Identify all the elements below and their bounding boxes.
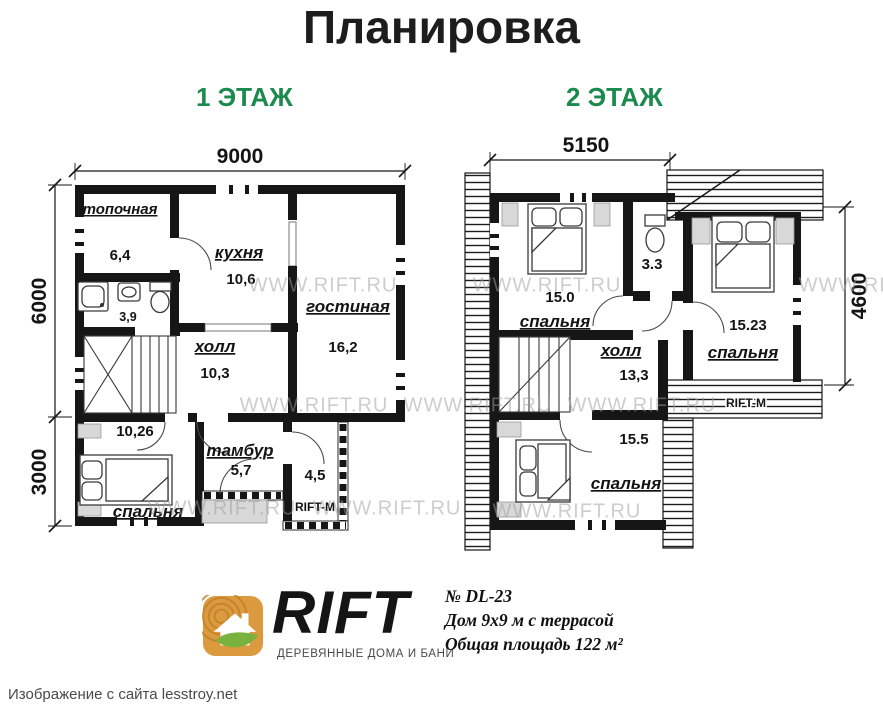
toilet [645,215,665,226]
balcony-riftm-label: RIFT-M [726,396,766,410]
project-description: Дом 9х9 м с террасой [445,608,623,632]
floor2-wc-fixtures [645,215,665,252]
svg-text:15.0: 15.0 [545,289,574,306]
roof-strip-bottom-right [663,418,693,548]
room-hall: холл [194,337,236,356]
rift-logo-icon [202,595,264,657]
dim-6000: 6000 [28,278,51,325]
nightstand [497,422,521,437]
nightstand [502,203,518,226]
nightstand [78,424,101,438]
room-porch-area: 4,5 [305,467,326,484]
floor2-bedroom1-furniture [502,203,610,274]
room-living: гостиная [306,297,390,316]
svg-text:16,2: 16,2 [328,339,357,356]
pillow [82,482,102,500]
entrance-step [202,500,267,523]
room-wc-area: 3.3 [642,256,663,273]
svg-text:15.23: 15.23 [729,317,767,334]
brand-name: RIFT [272,578,409,647]
nightstand [776,218,794,244]
project-total-area: Общая площадь 122 м² [445,632,623,656]
svg-text:13,3: 13,3 [619,367,648,384]
dim-3000: 3000 [28,449,51,496]
room-bedroom2: спальня [708,343,778,362]
roof-strip-left [465,173,490,550]
pillow [560,208,582,226]
pillow [82,461,102,479]
svg-text:10,3: 10,3 [200,365,229,382]
floor2-stairs [499,337,570,412]
svg-text:6,4: 6,4 [110,247,132,264]
floor-plan-page: Планировка 1 ЭТАЖ 2 ЭТАЖ 9000 6000 3000 [0,0,883,718]
svg-text:15.5: 15.5 [619,431,648,448]
floor1-label: 1 ЭТАЖ [196,82,293,113]
toilet [150,282,171,291]
pillow [532,208,556,226]
source-caption: Изображение с сайта lesstroy.net [8,686,237,703]
nightstand [594,203,610,226]
porch-riftm-label: RIFT-M [295,500,335,514]
floor2-bedroom3-furniture [497,422,570,517]
floor2-bedroom2-furniture [692,216,794,292]
floor1-bath-fixtures [78,282,171,313]
room-kitchen: кухня [215,243,263,262]
pillow [520,446,536,470]
room-topochnaya: топочная [83,201,158,218]
dim-5150: 5150 [563,134,610,157]
nightstand [497,502,521,517]
brand-tagline: ДЕРЕВЯННЫЕ ДОМА И БАНИ [277,648,454,660]
svg-text:10,6: 10,6 [226,271,255,288]
pillow [746,222,770,242]
room-bedroom3: спальня [591,474,661,493]
project-number: № DL-23 [445,584,623,608]
floor1-stairs [84,336,176,413]
dim-4600: 4600 [848,273,871,320]
dim-9000: 9000 [217,145,264,168]
floor2-plan: 5150 4600 [440,130,883,585]
svg-text:10,26: 10,26 [116,423,154,440]
floor2-label: 2 ЭТАЖ [566,82,663,113]
nightstand [692,218,710,244]
pillow [520,472,536,496]
floor1-plan: 9000 6000 3000 [20,130,440,580]
room-bath-area: 3,9 [119,310,136,324]
pillow [717,222,742,242]
room-hall2: холл [600,341,642,360]
page-title: Планировка [0,0,883,54]
project-info: № DL-23 Дом 9х9 м с террасой Общая площа… [445,584,623,656]
room-bedroom: спальня [113,502,183,521]
svg-text:5,7: 5,7 [231,462,252,479]
room-bedroom1: спальня [520,312,590,331]
room-tambur: тамбур [206,441,273,460]
